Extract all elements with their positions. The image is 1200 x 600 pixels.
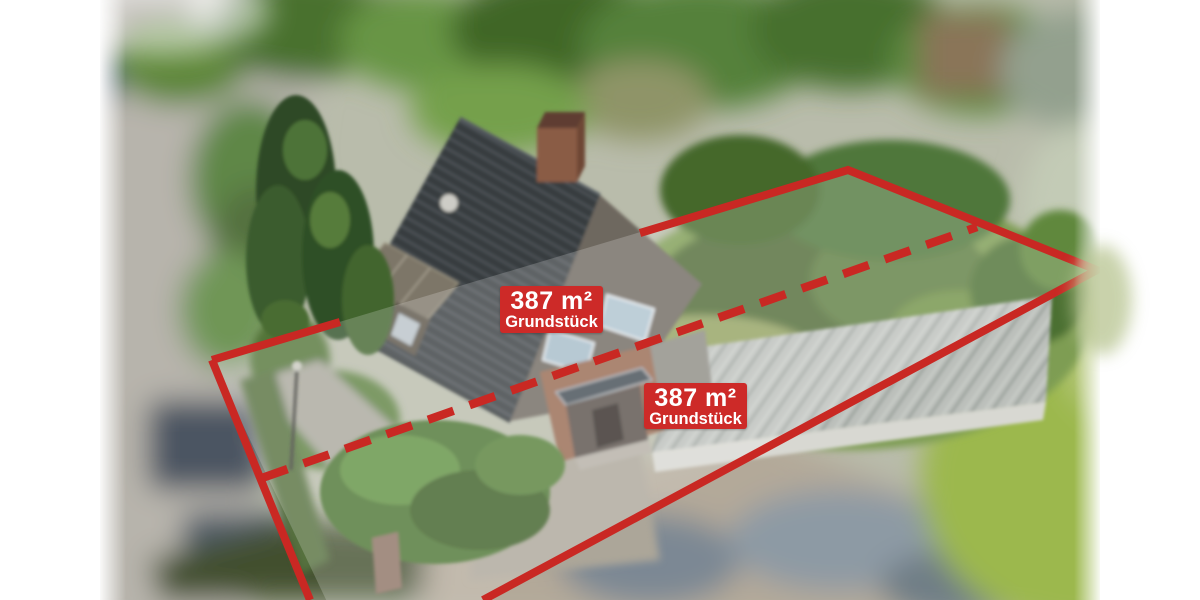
satellite-dish — [440, 194, 458, 212]
chimney-top — [537, 112, 585, 128]
aerial-property-photo: 387 m² Grundstück 387 m² Grundstück — [0, 0, 1200, 600]
plot-size-label-rear: 387 m² Grundstück — [644, 383, 747, 429]
plot-area-caption: Grundstück — [649, 411, 742, 428]
plot-size-label-front: 387 m² Grundstück — [500, 286, 603, 333]
left-white-band — [0, 0, 100, 600]
plot-area-value: 387 m² — [654, 385, 736, 411]
plot-area-value: 387 m² — [510, 288, 592, 314]
neighbor-roof-3 — [920, 15, 1010, 95]
plot-area-caption: Grundstück — [505, 314, 598, 331]
chimney — [537, 128, 577, 182]
